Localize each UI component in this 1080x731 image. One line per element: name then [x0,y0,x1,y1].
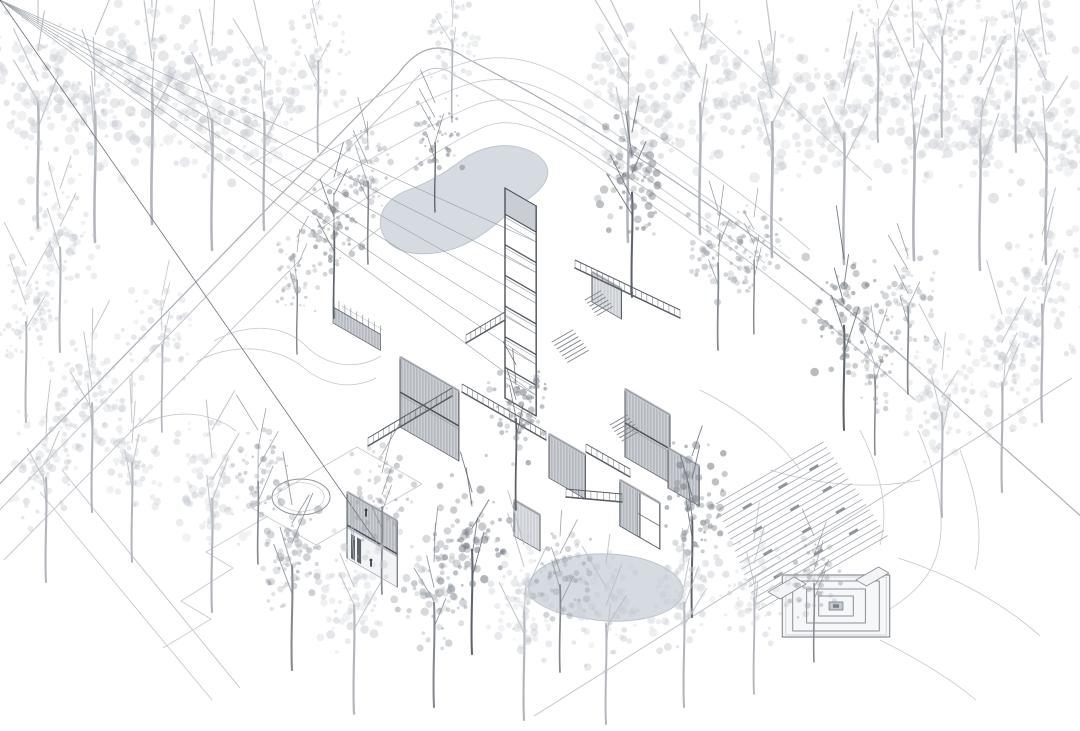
tree [126,260,192,432]
tree [795,12,896,264]
tree [220,0,307,230]
site-plan-svg: Axonometric architectural site illustrat… [0,0,1080,731]
boundary-road-6 [40,492,212,700]
garden-path-6 [880,640,976,700]
tree [433,452,513,654]
amphitheater-step [728,468,841,534]
garden-path-9 [960,450,979,570]
tree [101,372,162,562]
garden-path-3 [163,516,268,648]
tree [288,0,351,152]
garden-path-10 [770,470,920,485]
walkway-bridge-4 [586,444,630,477]
amphitheater-step [725,463,837,528]
tree [308,142,369,318]
boundary-road-0 [0,48,1080,520]
tree [18,156,101,352]
garden-path-7 [885,430,941,612]
outdoor-stair-0 [552,330,588,362]
tree [720,0,816,257]
tree [390,508,469,707]
walkway-bridge-0 [575,260,680,318]
amphitheater-step [737,489,855,557]
tree [845,305,899,455]
walkway-bridge-1 [466,312,505,343]
architectural-axonometric-illustration: Axonometric architectural site illustrat… [0,0,1080,731]
tree [728,188,783,334]
tree [485,342,548,510]
tree [997,188,1080,422]
tree [958,260,1042,492]
garden-path-1 [196,349,376,385]
garden-path-11 [700,390,800,470]
tree [578,0,674,242]
amphitheater-step [735,484,852,552]
tree [8,380,83,582]
tree [167,0,253,250]
boundary-road-3 [534,378,1072,716]
tree [173,391,252,612]
garden-path-5 [898,558,1040,636]
